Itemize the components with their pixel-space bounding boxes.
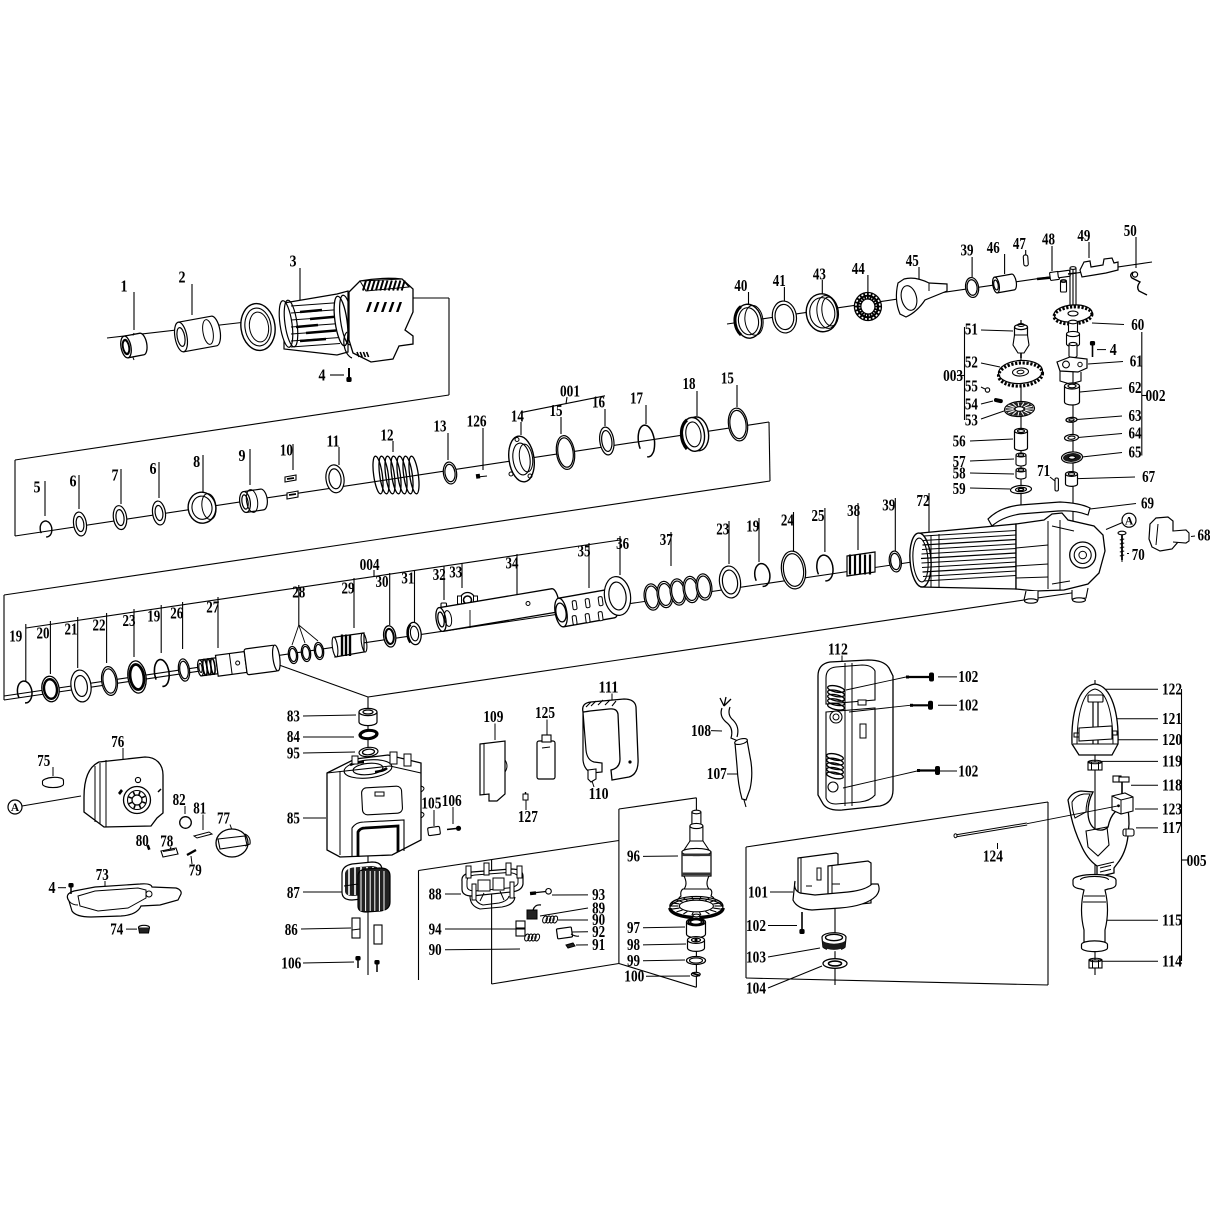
svg-text:69: 69 (1141, 493, 1154, 512)
svg-text:124: 124 (983, 846, 1003, 865)
svg-text:004: 004 (360, 555, 380, 574)
svg-text:53: 53 (965, 410, 978, 429)
svg-text:6: 6 (150, 459, 157, 478)
svg-text:9: 9 (239, 446, 246, 465)
svg-text:111: 111 (599, 677, 619, 696)
svg-text:4: 4 (49, 878, 56, 897)
svg-text:106: 106 (281, 953, 301, 972)
svg-text:3: 3 (290, 251, 297, 270)
svg-text:44: 44 (852, 259, 865, 278)
svg-text:65: 65 (1129, 443, 1142, 462)
svg-text:64: 64 (1129, 423, 1142, 442)
svg-text:4: 4 (319, 365, 326, 384)
svg-text:11: 11 (327, 431, 340, 450)
svg-text:4: 4 (1110, 340, 1117, 359)
svg-text:80: 80 (136, 831, 149, 850)
svg-text:A: A (11, 802, 20, 814)
svg-text:47: 47 (1013, 234, 1026, 253)
svg-text:39: 39 (961, 240, 974, 259)
svg-text:94: 94 (429, 919, 442, 938)
svg-text:82: 82 (173, 790, 186, 809)
svg-text:102: 102 (958, 667, 978, 686)
svg-text:102: 102 (746, 916, 766, 935)
svg-text:110: 110 (589, 784, 609, 803)
svg-text:115: 115 (1162, 911, 1182, 930)
svg-text:1: 1 (121, 276, 128, 295)
svg-text:86: 86 (285, 920, 298, 939)
svg-text:19: 19 (9, 626, 22, 645)
svg-text:10: 10 (280, 440, 293, 459)
svg-text:16: 16 (592, 392, 605, 411)
svg-text:75: 75 (37, 751, 50, 770)
svg-text:51: 51 (965, 320, 978, 339)
svg-text:90: 90 (429, 940, 442, 959)
svg-text:87: 87 (287, 883, 300, 902)
svg-text:96: 96 (627, 847, 640, 866)
svg-text:62: 62 (1129, 378, 1142, 397)
svg-text:33: 33 (449, 563, 462, 582)
svg-text:25: 25 (812, 506, 825, 525)
svg-text:74: 74 (110, 919, 123, 938)
svg-text:36: 36 (616, 534, 629, 553)
svg-text:30: 30 (376, 572, 389, 591)
svg-text:70: 70 (1132, 545, 1145, 564)
svg-text:52: 52 (965, 353, 978, 372)
svg-text:88: 88 (429, 884, 442, 903)
svg-text:72: 72 (917, 491, 930, 510)
svg-text:61: 61 (1130, 352, 1143, 371)
svg-text:A: A (1125, 515, 1134, 527)
svg-text:78: 78 (160, 832, 173, 851)
svg-text:14: 14 (511, 406, 524, 425)
svg-text:100: 100 (624, 967, 644, 986)
svg-text:102: 102 (958, 761, 978, 780)
svg-text:114: 114 (1162, 952, 1182, 971)
svg-text:118: 118 (1162, 776, 1182, 795)
svg-text:79: 79 (189, 861, 202, 880)
svg-text:41: 41 (773, 271, 786, 290)
svg-text:60: 60 (1131, 315, 1144, 334)
svg-text:003: 003 (943, 366, 963, 385)
svg-text:19: 19 (147, 606, 160, 625)
svg-text:15: 15 (721, 368, 734, 387)
svg-text:71: 71 (1037, 461, 1050, 480)
svg-text:40: 40 (734, 276, 747, 295)
svg-text:83: 83 (287, 707, 300, 726)
svg-text:56: 56 (953, 431, 966, 450)
svg-text:31: 31 (401, 568, 414, 587)
svg-text:001: 001 (560, 381, 580, 400)
svg-text:73: 73 (96, 865, 109, 884)
svg-text:2: 2 (179, 267, 186, 286)
svg-text:45: 45 (906, 251, 919, 270)
svg-text:112: 112 (828, 639, 848, 658)
svg-text:12: 12 (381, 425, 394, 444)
svg-text:127: 127 (518, 807, 538, 826)
svg-text:50: 50 (1124, 221, 1137, 240)
svg-text:18: 18 (683, 374, 696, 393)
svg-text:43: 43 (813, 264, 826, 283)
svg-text:39: 39 (882, 496, 895, 515)
svg-text:101: 101 (748, 882, 768, 901)
svg-text:17: 17 (630, 388, 643, 407)
svg-text:105: 105 (421, 793, 441, 812)
svg-text:19: 19 (746, 517, 759, 536)
svg-text:7: 7 (112, 465, 119, 484)
svg-text:67: 67 (1142, 467, 1155, 486)
svg-text:26: 26 (170, 603, 183, 622)
svg-text:95: 95 (287, 744, 300, 763)
svg-text:108: 108 (691, 721, 711, 740)
svg-text:15: 15 (550, 401, 563, 420)
svg-text:104: 104 (746, 978, 766, 997)
svg-text:103: 103 (746, 947, 766, 966)
svg-text:005: 005 (1187, 851, 1207, 870)
svg-text:117: 117 (1162, 818, 1182, 837)
svg-text:76: 76 (111, 732, 124, 751)
svg-text:109: 109 (483, 707, 503, 726)
svg-text:119: 119 (1162, 752, 1182, 771)
svg-text:24: 24 (781, 511, 794, 530)
svg-text:121: 121 (1162, 709, 1182, 728)
svg-text:106: 106 (442, 791, 462, 810)
svg-text:55: 55 (965, 377, 978, 396)
svg-text:27: 27 (206, 597, 219, 616)
svg-text:22: 22 (93, 615, 106, 634)
svg-text:123: 123 (1162, 799, 1182, 818)
svg-text:29: 29 (342, 578, 355, 597)
svg-text:81: 81 (193, 799, 206, 818)
svg-text:125: 125 (535, 703, 555, 722)
svg-text:122: 122 (1162, 680, 1182, 699)
svg-text:13: 13 (434, 416, 447, 435)
svg-text:102: 102 (958, 696, 978, 715)
svg-text:5: 5 (34, 477, 41, 496)
svg-text:63: 63 (1129, 406, 1142, 425)
svg-text:6: 6 (70, 471, 77, 490)
svg-text:20: 20 (37, 623, 50, 642)
svg-text:21: 21 (65, 619, 78, 638)
svg-text:23: 23 (716, 520, 729, 539)
svg-text:68: 68 (1198, 525, 1210, 544)
svg-text:91: 91 (592, 935, 605, 954)
svg-text:126: 126 (467, 411, 487, 430)
svg-text:8: 8 (193, 452, 200, 471)
svg-text:120: 120 (1162, 730, 1182, 749)
svg-text:48: 48 (1042, 230, 1055, 249)
svg-text:002: 002 (1146, 386, 1166, 405)
svg-text:85: 85 (287, 809, 300, 828)
svg-text:107: 107 (707, 764, 727, 783)
svg-text:46: 46 (987, 238, 1000, 257)
svg-text:77: 77 (217, 808, 230, 827)
svg-text:59: 59 (953, 479, 966, 498)
